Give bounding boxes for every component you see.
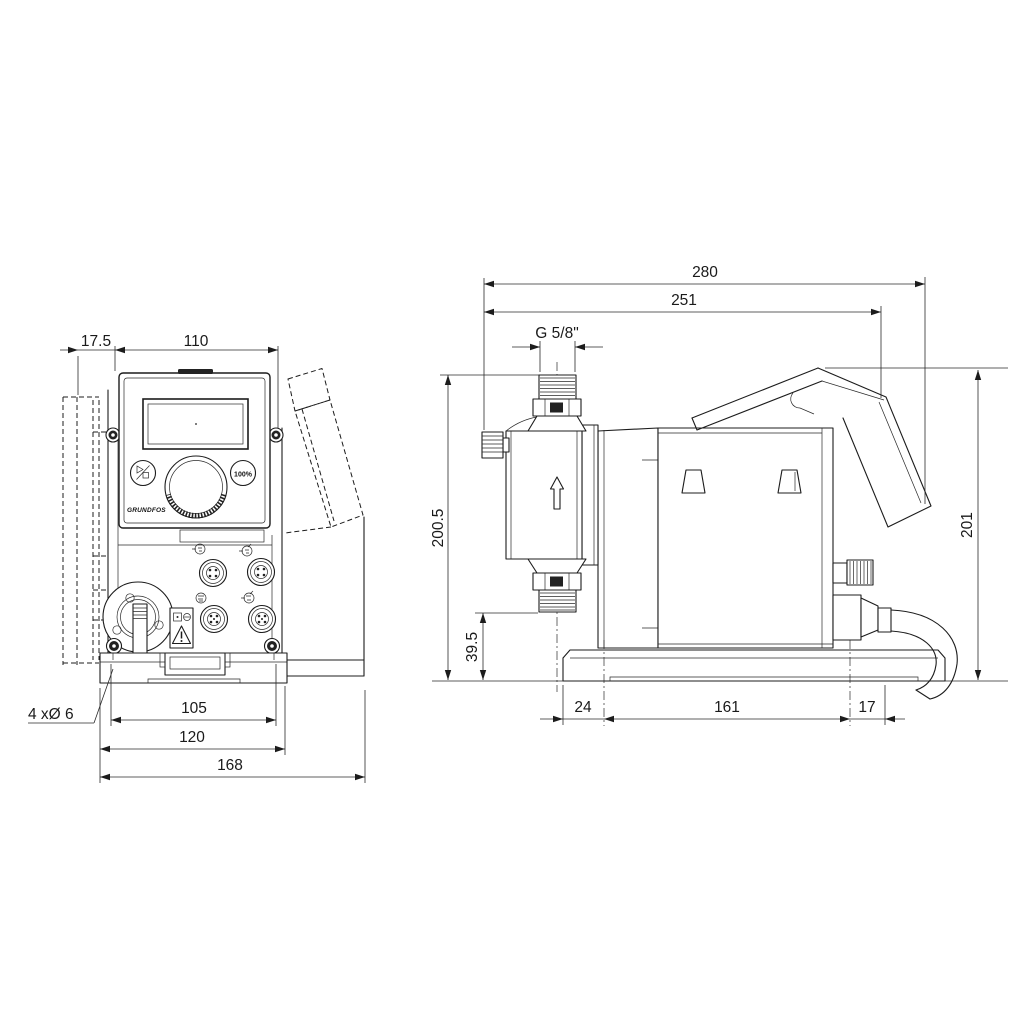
side-view: 280 251 G 5/8" 200.5 — [430, 264, 1008, 726]
m12-connector — [201, 606, 228, 633]
hole-note: 4 xØ 6 — [28, 706, 74, 723]
m12-connector — [249, 606, 276, 633]
m12-connectors — [200, 559, 276, 633]
mounting-plate-side — [563, 650, 945, 681]
dim-plate-width: 120 — [179, 729, 205, 746]
top-tab — [178, 369, 213, 374]
hidden-head-outline — [63, 397, 108, 665]
threaded-connection-top — [539, 375, 576, 399]
control-panel: 100% GRUNDFOS — [119, 369, 270, 528]
dim-valve-height: 39.5 — [464, 632, 481, 662]
dim-head-offset: 17.5 — [81, 333, 111, 350]
port-symbol-icon — [241, 591, 254, 603]
dim-rear-overhang: 17 — [858, 699, 875, 716]
hinge-screw-left — [106, 428, 120, 442]
cable-gland — [833, 595, 957, 699]
control-cube-front-dashed — [282, 369, 364, 677]
m12-connector — [248, 559, 275, 586]
port-symbol-icon — [196, 593, 206, 603]
corner-screw — [107, 639, 122, 654]
dimensional-drawing: 100% GRUNDFOS — [0, 0, 1024, 1024]
full-capacity-label: 100% — [234, 472, 253, 479]
din-rail-clip — [160, 653, 230, 675]
port-symbol-icon — [192, 544, 205, 554]
front-view: 100% GRUNDFOS — [28, 333, 365, 783]
dim-depth-to-cube: 251 — [671, 292, 697, 309]
m12-connector — [200, 560, 227, 587]
dim-height-to-connection: 200.5 — [430, 509, 447, 548]
connection-face — [103, 530, 280, 674]
click-wheel-knob — [165, 456, 227, 518]
full-capacity-button: 100% — [231, 461, 256, 486]
dim-front-overhang: 24 — [574, 699, 592, 716]
threaded-connection-bottom — [539, 590, 576, 612]
dim-panel-width: 110 — [184, 333, 209, 350]
threaded-stub — [847, 560, 873, 585]
dim-connection-thread: G 5/8" — [535, 325, 578, 342]
dosing-head — [482, 375, 598, 612]
port-symbol-icon — [239, 544, 252, 556]
thread-callout: G 5/8" — [512, 325, 603, 372]
motor-housing — [598, 428, 833, 648]
head-body — [506, 431, 582, 559]
warning-label — [170, 608, 193, 648]
mounting-plate-front — [100, 653, 287, 683]
start-stop-button — [131, 461, 156, 486]
dim-overall-width: 168 — [217, 757, 243, 774]
dim-overall-depth: 280 — [692, 264, 718, 281]
dim-side-hole-spacing: 161 — [714, 699, 740, 716]
corner-screw — [265, 639, 280, 654]
technical-drawing-page: 100% GRUNDFOS — [0, 0, 1024, 1024]
brand-logo: GRUNDFOS — [127, 507, 166, 514]
dim-hole-spacing: 105 — [181, 700, 207, 717]
hinge-screw-right — [269, 428, 283, 442]
priming-knob — [482, 432, 509, 458]
dim-overall-height: 201 — [959, 512, 976, 538]
head-flange-plate — [582, 425, 598, 565]
